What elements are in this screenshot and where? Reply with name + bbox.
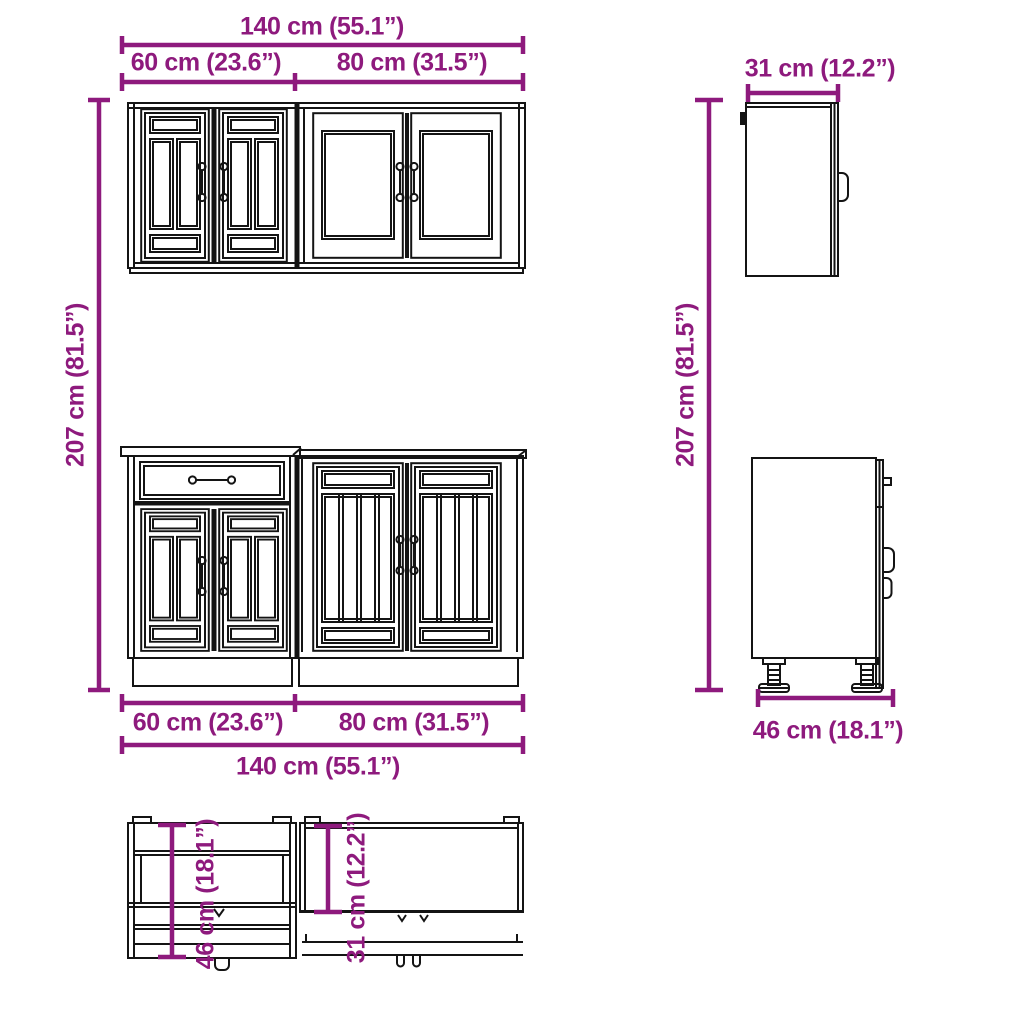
adjustable-leg	[852, 658, 882, 692]
kitchen-cabinet-dimension-diagram: 140 cm (55.1”) 60 cm (23.6”) 80 cm (31.5…	[0, 0, 1024, 1024]
dim-line-height-left	[88, 100, 110, 690]
door-handle	[838, 173, 848, 201]
cabinet-door	[141, 109, 209, 262]
dim-label-front-top-right: 80 cm (31.5”)	[337, 51, 487, 76]
plinth	[133, 658, 292, 686]
wall-cabinets-front-view	[128, 103, 525, 273]
drawer-handle	[189, 476, 235, 483]
dim-label-front-bottom-right: 80 cm (31.5”)	[339, 711, 489, 736]
dim-label-height-right: 207 cm (81.5”)	[674, 303, 699, 467]
door-handle	[883, 548, 894, 572]
dim-label-front-top-total: 140 cm (55.1”)	[240, 15, 404, 40]
dim-label-side-bottom-depth: 46 cm (18.1”)	[753, 719, 903, 744]
hinge	[740, 112, 746, 125]
dim-line-plan-left-depth	[158, 825, 186, 957]
cabinet-door	[219, 509, 287, 651]
cabinet-door	[141, 509, 209, 651]
dim-label-front-bottom-left: 60 cm (23.6”)	[133, 711, 283, 736]
drawer-handle	[883, 478, 891, 485]
cabinet-door	[411, 463, 501, 651]
wall-cabinet-top-view	[300, 817, 523, 967]
base-cabinets-front-view	[121, 447, 526, 686]
dim-line-side-top-depth	[748, 84, 838, 102]
dim-label-front-bottom-total: 140 cm (55.1”)	[236, 755, 400, 780]
adjustable-leg	[759, 658, 789, 692]
dim-label-plan-right-depth: 31 cm (12.2”)	[345, 813, 370, 963]
dim-label-plan-left-depth: 46 cm (18.1”)	[194, 819, 219, 969]
dim-label-front-top-left: 60 cm (23.6”)	[131, 51, 281, 76]
cabinet-door	[411, 113, 501, 258]
cabinet-door	[219, 109, 287, 262]
cabinet-door	[313, 463, 403, 651]
dim-label-height-left: 207 cm (81.5”)	[64, 303, 89, 467]
dim-label-side-top-depth: 31 cm (12.2”)	[745, 57, 895, 82]
wall-cabinet-bottom-rail	[130, 268, 523, 273]
dim-line-front-bottom-total	[122, 736, 523, 754]
hinge-mark	[398, 915, 428, 921]
wall-cabinet-side-view	[740, 103, 848, 276]
detached-door-top-view	[302, 934, 523, 967]
plinth	[299, 658, 518, 686]
dim-line-plan-right-depth	[314, 826, 342, 912]
base-cabinet-side-view	[752, 458, 894, 692]
countertop	[121, 447, 300, 456]
cabinet-line-drawing	[0, 0, 1024, 1024]
cabinet-door	[313, 113, 403, 258]
